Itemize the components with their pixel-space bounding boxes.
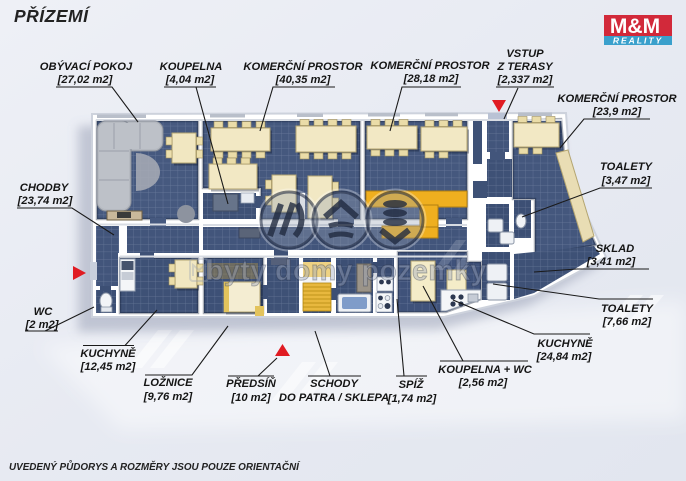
svg-text:[12,45 m2]: [12,45 m2] [80,361,137,373]
svg-text:byty domy pozemky: byty domy pozemky [206,255,487,287]
svg-text:[1,74 m2]: [1,74 m2] [387,393,438,405]
svg-text:[40,35 m2]: [40,35 m2] [275,74,332,86]
svg-text:[2 m2]: [2 m2] [25,319,60,331]
svg-text:[3,47 m2]: [3,47 m2] [601,175,652,187]
svg-text:WC: WC [34,306,54,318]
svg-text:[2,56 m2]: [2,56 m2] [458,377,509,389]
svg-text:KUCHYNĚ: KUCHYNĚ [80,347,136,360]
svg-text:VSTUP: VSTUP [506,48,544,60]
svg-text:[23,74 m2]: [23,74 m2] [17,195,74,207]
svg-text:CHODBY: CHODBY [20,182,70,194]
svg-text:PŘEDSÍŇ: PŘEDSÍŇ [226,377,277,390]
svg-text:KOMERČNÍ PROSTOR: KOMERČNÍ PROSTOR [557,92,676,105]
svg-text:[28,18 m2]: [28,18 m2] [403,73,460,85]
svg-text:[23,9 m2]: [23,9 m2] [592,106,643,118]
svg-text:TOALETY: TOALETY [600,161,654,173]
svg-text:UVEDENÝ PŮDORYS A ROZMĚRY JSOU: UVEDENÝ PŮDORYS A ROZMĚRY JSOU POUZE ORI… [9,461,301,473]
svg-text:DO PATRA / SKLEPA: DO PATRA / SKLEPA [279,392,389,404]
svg-text:[3,41 m2]: [3,41 m2] [586,256,637,268]
svg-text:SPÍŽ: SPÍŽ [399,378,425,391]
svg-text:SKLAD: SKLAD [596,243,635,255]
svg-text:KOUPELNA: KOUPELNA [160,61,223,73]
svg-text:REALITY: REALITY [613,36,663,46]
svg-text:KOMERČNÍ PROSTOR: KOMERČNÍ PROSTOR [370,59,489,72]
svg-text:Z TERASY: Z TERASY [496,61,554,73]
svg-text:PŘÍZEMÍ: PŘÍZEMÍ [14,5,91,26]
svg-text:LOŽNICE: LOŽNICE [143,376,193,389]
svg-text:[24,84 m2]: [24,84 m2] [536,351,593,363]
svg-text:[7,66 m2]: [7,66 m2] [602,316,653,328]
svg-text:[27,02 m2]: [27,02 m2] [57,74,114,86]
svg-text:SCHODY: SCHODY [310,378,359,390]
svg-text:KOMERČNÍ PROSTOR: KOMERČNÍ PROSTOR [243,60,362,73]
svg-text:KUCHYNĚ: KUCHYNĚ [537,337,593,350]
svg-text:[10 m2]: [10 m2] [230,392,271,404]
svg-text:[2,337 m2]: [2,337 m2] [497,74,554,86]
svg-text:OBÝVACÍ POKOJ: OBÝVACÍ POKOJ [40,60,133,73]
svg-text:[4,04 m2]: [4,04 m2] [165,74,216,86]
svg-text:KOUPELNA + WC: KOUPELNA + WC [438,364,533,376]
svg-text:[9,76 m2]: [9,76 m2] [143,391,194,403]
svg-text:TOALETY: TOALETY [601,303,655,315]
